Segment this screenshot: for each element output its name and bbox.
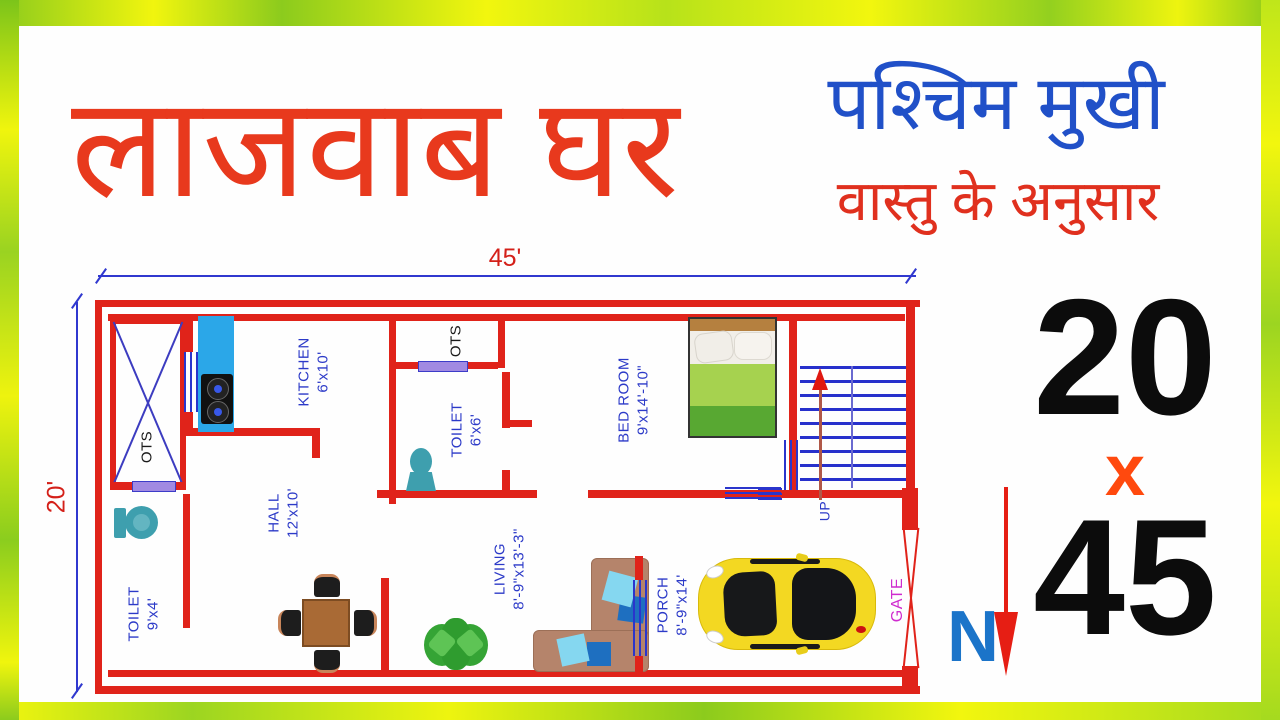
wall-toilet-left-right	[183, 494, 190, 628]
room-label-toilet-mid: TOILET 6'x6'	[448, 402, 486, 457]
window-under-stairs	[758, 488, 782, 500]
room-label-toilet-left: TOILET 9'x4'	[125, 586, 163, 641]
car-sill	[750, 644, 820, 649]
wall-living-porch-top	[635, 556, 643, 580]
window-living-porch	[633, 580, 647, 656]
sofa-cushion-light	[556, 633, 589, 666]
wc-bowl-inner	[133, 514, 150, 531]
burner-center	[214, 408, 222, 416]
room-label-ots-top-left: OTS	[139, 431, 158, 463]
basin-pedestal	[406, 472, 436, 491]
stairs-center-line	[851, 366, 853, 488]
window-stairs	[784, 440, 798, 490]
window-ots-mid	[418, 361, 468, 372]
bed-headboard	[690, 319, 775, 331]
window-toilet-left	[132, 481, 176, 492]
dining-chair	[278, 610, 301, 636]
car-taillight	[856, 626, 866, 633]
stove	[201, 374, 233, 424]
bed	[688, 317, 777, 438]
plot-size-second: 45	[1015, 505, 1235, 650]
burner-center	[214, 385, 222, 393]
car-rear-glass	[722, 571, 777, 638]
wall-toilet-mid-left	[389, 314, 396, 504]
toilet-wc	[114, 505, 160, 541]
bed-sheet-dark	[690, 406, 775, 436]
bed-pillow	[693, 330, 735, 365]
dining-chair	[314, 650, 340, 673]
room-label-living: LIVING 8'-9"x13'-3"	[491, 528, 529, 610]
wall-kitchen-stub	[312, 436, 320, 458]
frame-bottom	[0, 701, 1280, 720]
burner	[207, 401, 229, 423]
subtitle-as-per-vastu: वास्तु के अनुसार	[762, 158, 1234, 244]
north-arrow-head	[994, 612, 1018, 676]
wall-outer-bottom	[95, 686, 920, 694]
plot-size-first: 20	[1015, 280, 1235, 435]
dining-table	[302, 599, 350, 647]
wall-ots-mid-right	[498, 314, 505, 368]
basin-bowl	[410, 448, 432, 475]
wc-bowl	[125, 506, 158, 539]
dining-set	[278, 574, 374, 672]
dining-chair	[354, 610, 377, 636]
stairs-arrow-line	[819, 386, 822, 500]
burner	[207, 378, 229, 400]
lounge-chair	[424, 618, 488, 670]
bed-pillow	[734, 332, 772, 360]
left-dimension-label: 20'	[41, 481, 72, 514]
stairs-up-label: UP	[816, 501, 834, 521]
top-dimension-line	[98, 275, 916, 277]
bed-sheet-light	[690, 364, 775, 406]
wall-toilet-mid-bottom	[377, 490, 537, 498]
room-label-porch: PORCH 8'-9"x14'	[654, 574, 692, 635]
sofa-cushion-dark	[587, 642, 611, 666]
gate-label: GATE	[888, 578, 908, 622]
room-label-ots-mid: OTS	[448, 325, 467, 357]
window-kitchen	[184, 352, 198, 412]
main-title: लाजवाब घर	[30, 48, 720, 248]
room-label-bedroom: BED ROOM 9'x14'-10"	[615, 357, 653, 443]
dining-chair	[314, 574, 340, 597]
car	[698, 558, 876, 650]
wall-hall-living	[381, 578, 389, 677]
top-dimension-label: 45'	[470, 244, 540, 273]
north-arrow-line	[1004, 487, 1008, 617]
wall-kitchen-left-top	[186, 318, 193, 352]
frame-left	[0, 0, 19, 720]
wall-toilet-mid-hook	[502, 420, 532, 427]
room-label-hall: HALL 12'x10'	[265, 488, 303, 538]
stairs-arrow-head	[812, 368, 828, 390]
wall-living-porch-bottom	[635, 656, 643, 677]
wall-outer-top	[95, 300, 920, 307]
wall-inner-bottom	[108, 670, 906, 677]
car-windshield	[792, 568, 856, 640]
frame-top	[0, 0, 1280, 26]
wash-basin	[404, 448, 438, 492]
left-dimension-line	[76, 302, 78, 692]
car-sill	[750, 559, 820, 564]
subtitle-west-facing: पश्चिम मुखी	[760, 50, 1232, 158]
wall-outer-left	[95, 300, 102, 693]
frame-right	[1261, 0, 1280, 720]
room-label-kitchen: KITCHEN 6'x10'	[295, 337, 333, 406]
